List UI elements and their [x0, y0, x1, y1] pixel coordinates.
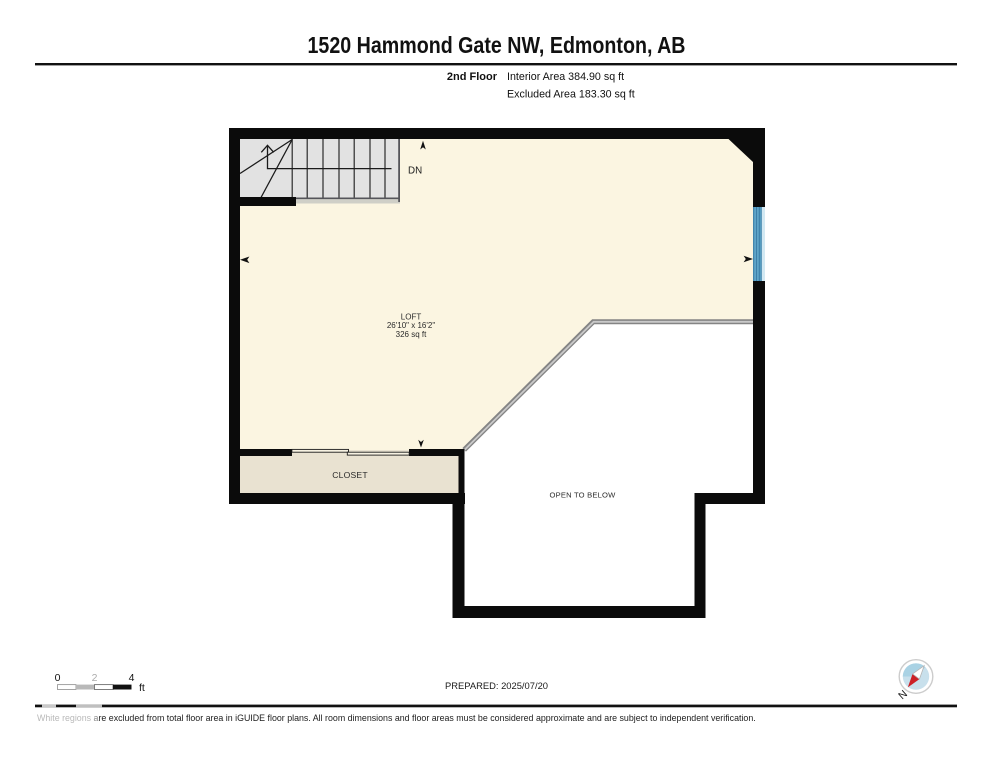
svg-text:4: 4: [129, 672, 135, 684]
svg-text:0: 0: [55, 672, 61, 684]
svg-text:CLOSET: CLOSET: [332, 470, 368, 480]
svg-text:2: 2: [92, 672, 98, 684]
svg-text:Excluded Area 183.30 sq ft: Excluded Area 183.30 sq ft: [507, 89, 635, 101]
svg-text:PREPARED: 2025/07/20: PREPARED: 2025/07/20: [445, 680, 548, 691]
svg-text:326 sq ft: 326 sq ft: [396, 330, 427, 339]
svg-text:ft: ft: [139, 682, 145, 694]
svg-text:LOFT: LOFT: [401, 313, 422, 322]
svg-text:Interior Area 384.90 sq ft: Interior Area 384.90 sq ft: [507, 71, 624, 83]
svg-text:DN: DN: [408, 165, 422, 176]
svg-text:2nd Floor: 2nd Floor: [447, 71, 498, 83]
svg-text:1520 Hammond Gate NW, Edmonton: 1520 Hammond Gate NW, Edmonton, AB: [308, 32, 686, 58]
svg-text:26'10" x 16'2": 26'10" x 16'2": [387, 321, 435, 330]
svg-text:OPEN TO BELOW: OPEN TO BELOW: [549, 491, 616, 500]
svg-text:White regions are excluded fro: White regions are excluded from total fl…: [37, 713, 756, 723]
